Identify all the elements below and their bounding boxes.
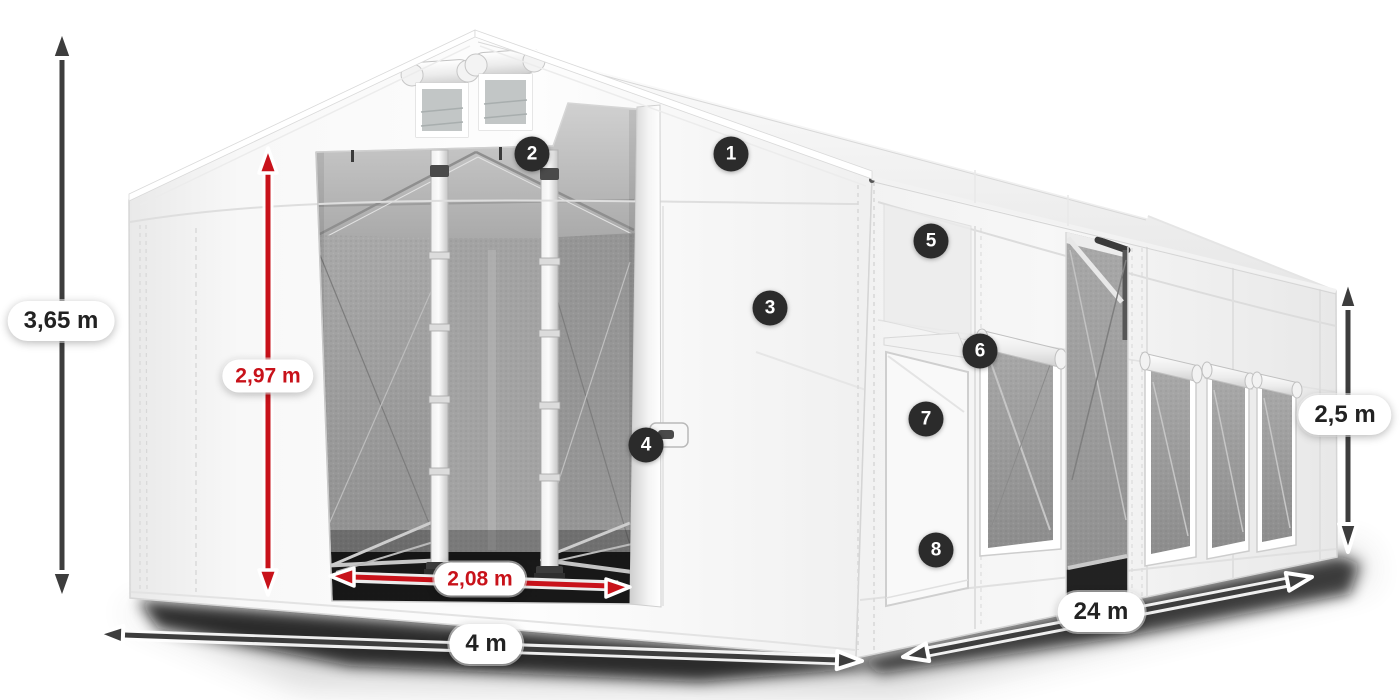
- entrance-interior: [310, 95, 670, 620]
- tent-illustration: [0, 0, 1400, 700]
- dimension-label-total-height: 3,65 m: [8, 301, 115, 341]
- callout-7[interactable]: 7: [909, 402, 944, 437]
- callout-4[interactable]: 4: [629, 428, 664, 463]
- dimension-label-clear-height: 2,97 m: [222, 360, 313, 393]
- dimension-label-length: 24 m: [1058, 592, 1145, 632]
- dimension-label-width: 4 m: [449, 624, 522, 664]
- side-window-4: [1252, 372, 1302, 552]
- side-window-3: [1202, 362, 1255, 559]
- product-diagram: 3,65 m 2,97 m 2,08 m 4 m 24 m 2,5 m 1 2 …: [0, 0, 1400, 700]
- callout-2[interactable]: 2: [515, 137, 550, 172]
- side-door: [884, 333, 968, 606]
- dimension-label-side-height: 2,5 m: [1298, 395, 1391, 435]
- callout-6[interactable]: 6: [963, 334, 998, 369]
- dimension-label-door-width: 2,08 m: [434, 563, 525, 596]
- callout-1[interactable]: 1: [714, 137, 749, 172]
- callout-3[interactable]: 3: [753, 291, 788, 326]
- side-open-doorway: [1066, 232, 1128, 614]
- callout-8[interactable]: 8: [919, 533, 954, 568]
- callout-5[interactable]: 5: [914, 224, 949, 259]
- side-window-2: [1140, 352, 1202, 566]
